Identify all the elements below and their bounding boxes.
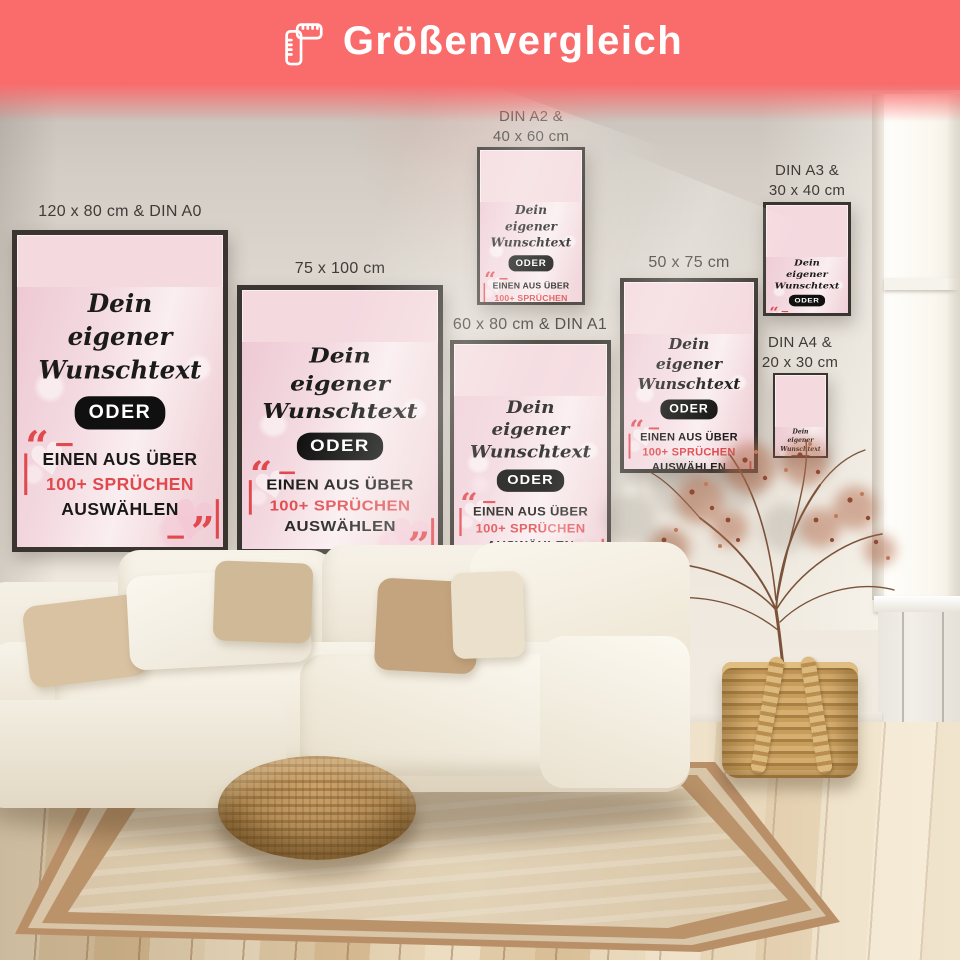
script-line: eigener xyxy=(17,320,223,353)
poster-frame: Dein eigener Wunschtext ODER “ EINEN AUS… xyxy=(477,147,585,305)
quote-rule-right xyxy=(431,518,434,551)
slogan-line: EINEN AUS ÜBER xyxy=(252,475,428,496)
poster-script-text: Dein eigener Wunschtext xyxy=(17,287,223,387)
oder-badge: ODER xyxy=(508,255,553,271)
poster-size-label: 60 x 80 cm & DIN A1 xyxy=(410,314,650,335)
close-quote-mark: ” xyxy=(408,528,431,554)
poster-size-label: 75 x 100 cm xyxy=(220,258,460,279)
slogan-line: EINEN AUS ÜBER xyxy=(462,504,600,521)
woven-pouf xyxy=(218,756,416,860)
slogan-line-accent: 100+ SPRÜCHEN xyxy=(252,496,428,517)
quote-rule-left xyxy=(484,283,486,303)
poster-size-label-line1: 60 x 80 cm & DIN A1 xyxy=(410,314,650,335)
oder-badge: ODER xyxy=(496,470,564,492)
script-line: Dein xyxy=(766,257,848,269)
poster-size-label: DIN A3 & 30 x 40 cm xyxy=(707,161,907,201)
poster-art: Dein eigener Wunschtext ODER “ EINEN AUS… xyxy=(480,202,582,305)
script-line: eigener xyxy=(480,218,582,234)
poster-size-label-line1: 50 x 75 cm xyxy=(589,252,789,273)
size-comparison-image: 120 x 80 cm & DIN A0 Dein eigener Wunsch… xyxy=(0,0,960,960)
script-line: eigener xyxy=(242,370,438,398)
open-quote-mark: “ xyxy=(250,458,273,493)
slogan-line: AUSWÄHLEN xyxy=(252,516,428,537)
poster-slogan: “ EINEN AUS ÜBER 100+ SPRÜCHEN AUSWÄHLEN… xyxy=(27,447,212,522)
poster-slogan: “ EINEN AUS ÜBER 100+ SPRÜCHEN AUSWÄHLEN… xyxy=(485,280,577,305)
slogan-line: EINEN AUS ÜBER xyxy=(485,280,577,292)
open-quote-mark: “ xyxy=(484,270,496,290)
slogan-line-accent: 100+ SPRÜCHEN xyxy=(462,521,600,538)
poster-frame: Dein eigener Wunschtext ODER “ EINEN AUS… xyxy=(12,230,228,552)
poster-script-text: Dein eigener Wunschtext xyxy=(766,257,848,292)
quote-rule-left xyxy=(459,508,461,536)
quote-rule-right xyxy=(216,499,219,539)
slogan-line: AUSWÄHLEN xyxy=(485,304,577,305)
script-line: Wunschtext xyxy=(624,374,754,394)
poster-script-text: Dein eigener Wunschtext xyxy=(480,202,582,251)
quote-rule-left xyxy=(249,480,252,515)
poster-script-text: Dein eigener Wunschtext xyxy=(624,334,754,394)
poster-slogan: “ EINEN AUS ÜBER 100+ SPRÜCHEN AUSWÄHLEN… xyxy=(252,475,428,537)
poster-size-label: DIN A2 & 40 x 60 cm xyxy=(431,107,631,147)
slogan-line: AUSWÄHLEN xyxy=(462,537,600,554)
slogan-line-accent: 100+ SPRÜCHEN xyxy=(485,292,577,304)
poster-size-label-line1: 120 x 80 cm & DIN A0 xyxy=(0,201,240,222)
script-line: Dein xyxy=(17,287,223,320)
poster-size-label-line1: DIN A3 & xyxy=(707,161,907,181)
close-quote-mark: ” xyxy=(191,512,215,552)
oder-badge: ODER xyxy=(74,396,166,429)
script-line: Wunschtext xyxy=(480,234,582,250)
poster-art: Dein eigener Wunschtext ODER “ EINEN AUS… xyxy=(242,342,438,554)
poster-frame: Dein eigener Wunschtext ODER “ EINEN AUS… xyxy=(237,285,443,554)
poster-script-text: Dein eigener Wunschtext xyxy=(242,342,438,425)
poster-size-label-line1: 75 x 100 cm xyxy=(220,258,460,279)
open-quote-mark: “ xyxy=(460,490,478,518)
script-line: Dein xyxy=(242,342,438,370)
poster-size-label-line2: 30 x 40 cm xyxy=(707,181,907,201)
dried-plant xyxy=(580,400,920,700)
poster-frame: Dein eigener Wunschtext ODER “ EINEN AUS… xyxy=(763,202,851,316)
poster-size-label: 120 x 80 cm & DIN A0 xyxy=(0,201,240,222)
open-quote-mark: “ xyxy=(769,305,778,316)
poster-size-label: 50 x 75 cm xyxy=(589,252,789,273)
poster-size-label-line2: 20 x 30 cm xyxy=(700,353,900,373)
poster-size-label-line2: 40 x 60 cm xyxy=(431,127,631,147)
open-quote-mark: “ xyxy=(25,426,49,468)
slogan-line: EINEN AUS ÜBER xyxy=(27,447,212,472)
poster-size-label: DIN A4 & 20 x 30 cm xyxy=(700,333,900,373)
slogan-line: AUSWÄHLEN xyxy=(27,497,212,522)
quote-rule-left xyxy=(24,453,27,495)
script-line: Wunschtext xyxy=(242,397,438,425)
script-line: eigener xyxy=(624,354,754,374)
oder-badge: ODER xyxy=(789,295,825,307)
quote-rule-left xyxy=(769,315,770,316)
oder-badge: ODER xyxy=(296,433,383,461)
poster-art: Dein eigener Wunschtext ODER “ EINEN AUS… xyxy=(766,257,848,316)
script-line: Wunschtext xyxy=(766,280,848,292)
poster-slogan: “ EINEN AUS ÜBER 100+ SPRÜCHEN AUSWÄHLEN… xyxy=(462,504,600,554)
wicker-basket-planter xyxy=(722,662,858,778)
script-line: Dein xyxy=(624,334,754,354)
poster-size-label-line1: DIN A2 & xyxy=(431,107,631,127)
poster-slogan: “ EINEN AUS ÜBER 100+ SPRÜCHEN AUSWÄHLEN… xyxy=(770,312,844,316)
poster-size-label-line1: DIN A4 & xyxy=(700,333,900,353)
slogan-line-accent: 100+ SPRÜCHEN xyxy=(27,472,212,497)
slogan-line: EINEN AUS ÜBER xyxy=(770,312,844,316)
script-line: eigener xyxy=(766,269,848,281)
poster-art: Dein eigener Wunschtext ODER “ EINEN AUS… xyxy=(17,287,223,552)
script-line: Wunschtext xyxy=(17,354,223,387)
script-line: Dein xyxy=(480,202,582,218)
